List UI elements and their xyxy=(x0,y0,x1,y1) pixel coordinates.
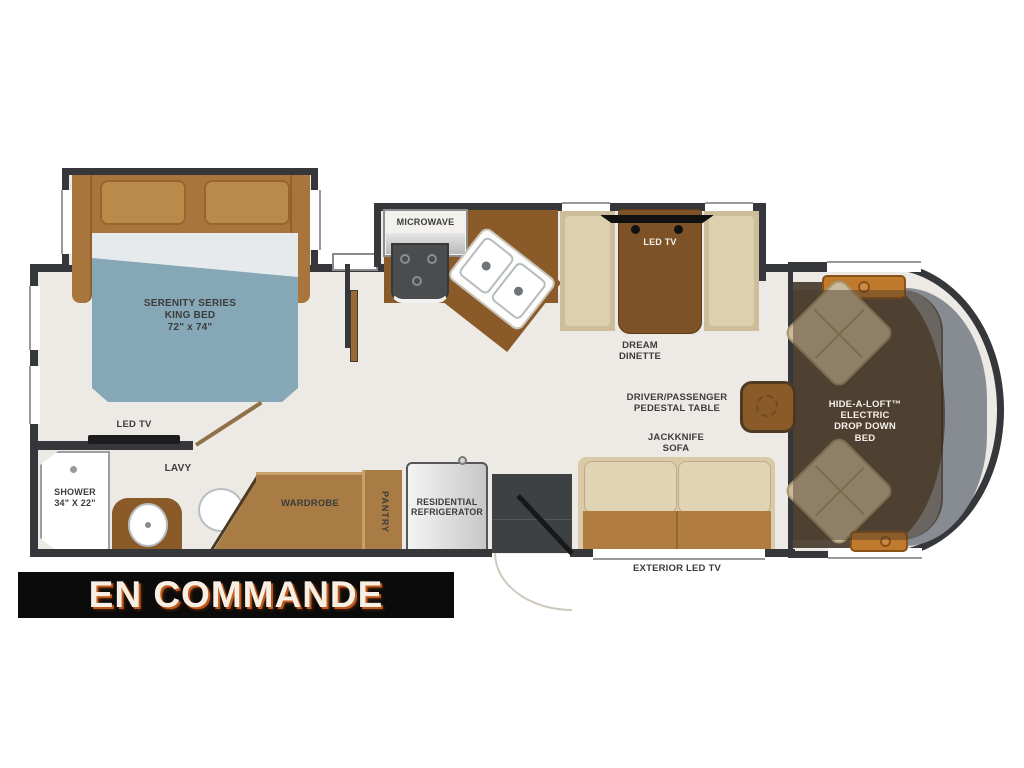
status-banner-label: EN COMMANDE xyxy=(89,574,384,616)
bottom-wall-door-right xyxy=(570,549,593,557)
refrigerator-knob xyxy=(458,456,467,465)
shower-label: SHOWER 34" X 22" xyxy=(40,487,110,508)
shower-label-line1: SHOWER xyxy=(40,487,110,498)
vanity-drain xyxy=(145,522,151,528)
hide-a-loft-label-line3: DROP DOWN xyxy=(810,421,920,432)
burner-2 xyxy=(427,254,437,264)
king-bed-label-line3: 72" x 74" xyxy=(115,322,265,334)
hide-a-loft-label-line2: ELECTRIC xyxy=(810,410,920,421)
hide-a-loft-label-line1: HIDE-A-LOFT™ xyxy=(810,399,920,410)
pedestal-table-label-line2: PEDESTAL TABLE xyxy=(618,403,736,414)
mid-wall-window xyxy=(332,253,378,271)
king-bed-label: SERENITY SERIES KING BED 72" x 74" xyxy=(115,298,265,333)
king-bed-label-line2: KING BED xyxy=(115,310,265,322)
dinette-bench-left-cushion xyxy=(565,216,610,326)
sofa-label: JACKKNIFE SOFA xyxy=(630,432,722,454)
wardrobe-label: WARDROBE xyxy=(260,498,360,509)
dinette-label: DREAM DINETTE xyxy=(590,340,690,362)
exterior-tv-label: EXTERIOR LED TV xyxy=(612,563,742,574)
bedroom-slide-window-right xyxy=(310,190,321,250)
sofa-back-cushion-left xyxy=(584,461,677,513)
pedestal-table-base xyxy=(756,395,778,417)
lavy-label: LAVY xyxy=(148,463,208,475)
dinette-tv xyxy=(600,215,714,223)
dinette-tv-mount-left xyxy=(631,225,640,234)
top-wall-right xyxy=(764,264,830,272)
bedroom-slide-window-left xyxy=(61,190,72,254)
dinette-tv-mount-right xyxy=(674,225,683,234)
hide-a-loft-label-line4: BED xyxy=(810,433,920,444)
left-window-2 xyxy=(29,366,40,424)
sofa-back-cushion-right xyxy=(678,461,771,513)
hide-a-loft-label: HIDE-A-LOFT™ ELECTRIC DROP DOWN BED xyxy=(810,399,920,444)
rv-floorplan: SERENITY SERIES KING BED 72" x 74" LED T… xyxy=(0,0,1024,768)
dinette-label-line1: DREAM xyxy=(590,340,690,351)
bottom-window xyxy=(593,549,765,560)
entry-door-swing-arc xyxy=(494,553,572,611)
sofa-label-line1: JACKKNIFE xyxy=(630,432,722,443)
pedestal-table-label: DRIVER/PASSENGER PEDESTAL TABLE xyxy=(618,392,736,414)
stove xyxy=(391,243,449,303)
galley-door-leaf xyxy=(350,290,358,362)
dinette-tv-label: LED TV xyxy=(632,237,688,248)
burner-3 xyxy=(412,276,422,286)
dinette-bench-right-cushion xyxy=(709,216,754,326)
slideout-left-wall xyxy=(374,203,381,267)
bed-arm-left xyxy=(72,175,92,303)
dinette-label-line2: DINETTE xyxy=(590,351,690,362)
king-bed-label-line1: SERENITY SERIES xyxy=(115,298,265,310)
refrigerator-label: RESIDENTIAL REFRIGERATOR xyxy=(408,497,486,518)
pedestal-table-label-line1: DRIVER/PASSENGER xyxy=(618,392,736,403)
entry-step-seam xyxy=(493,519,571,520)
pillow-left xyxy=(100,180,186,225)
pantry-label: PANTRY xyxy=(374,480,390,544)
burner-1 xyxy=(400,254,410,264)
left-window-1 xyxy=(29,286,40,350)
microwave-label: MICROWAVE xyxy=(384,217,467,228)
bedroom-tv xyxy=(88,435,180,444)
bottom-wall-left xyxy=(30,549,492,557)
wardrobe xyxy=(256,472,362,553)
status-banner: EN COMMANDE xyxy=(18,572,454,618)
pillow-right xyxy=(204,180,290,225)
sofa-seat-seam xyxy=(676,511,678,551)
bedroom-tv-label: LED TV xyxy=(99,419,169,430)
shower-label-line2: 34" X 22" xyxy=(40,498,110,509)
cab-top-window xyxy=(827,261,921,272)
refrigerator-label-line2: REFRIGERATOR xyxy=(408,507,486,517)
shower-head-icon xyxy=(70,466,77,473)
sofa-label-line2: SOFA xyxy=(630,443,722,454)
bottom-wall-right xyxy=(765,549,795,557)
refrigerator-label-line1: RESIDENTIAL xyxy=(408,497,486,507)
